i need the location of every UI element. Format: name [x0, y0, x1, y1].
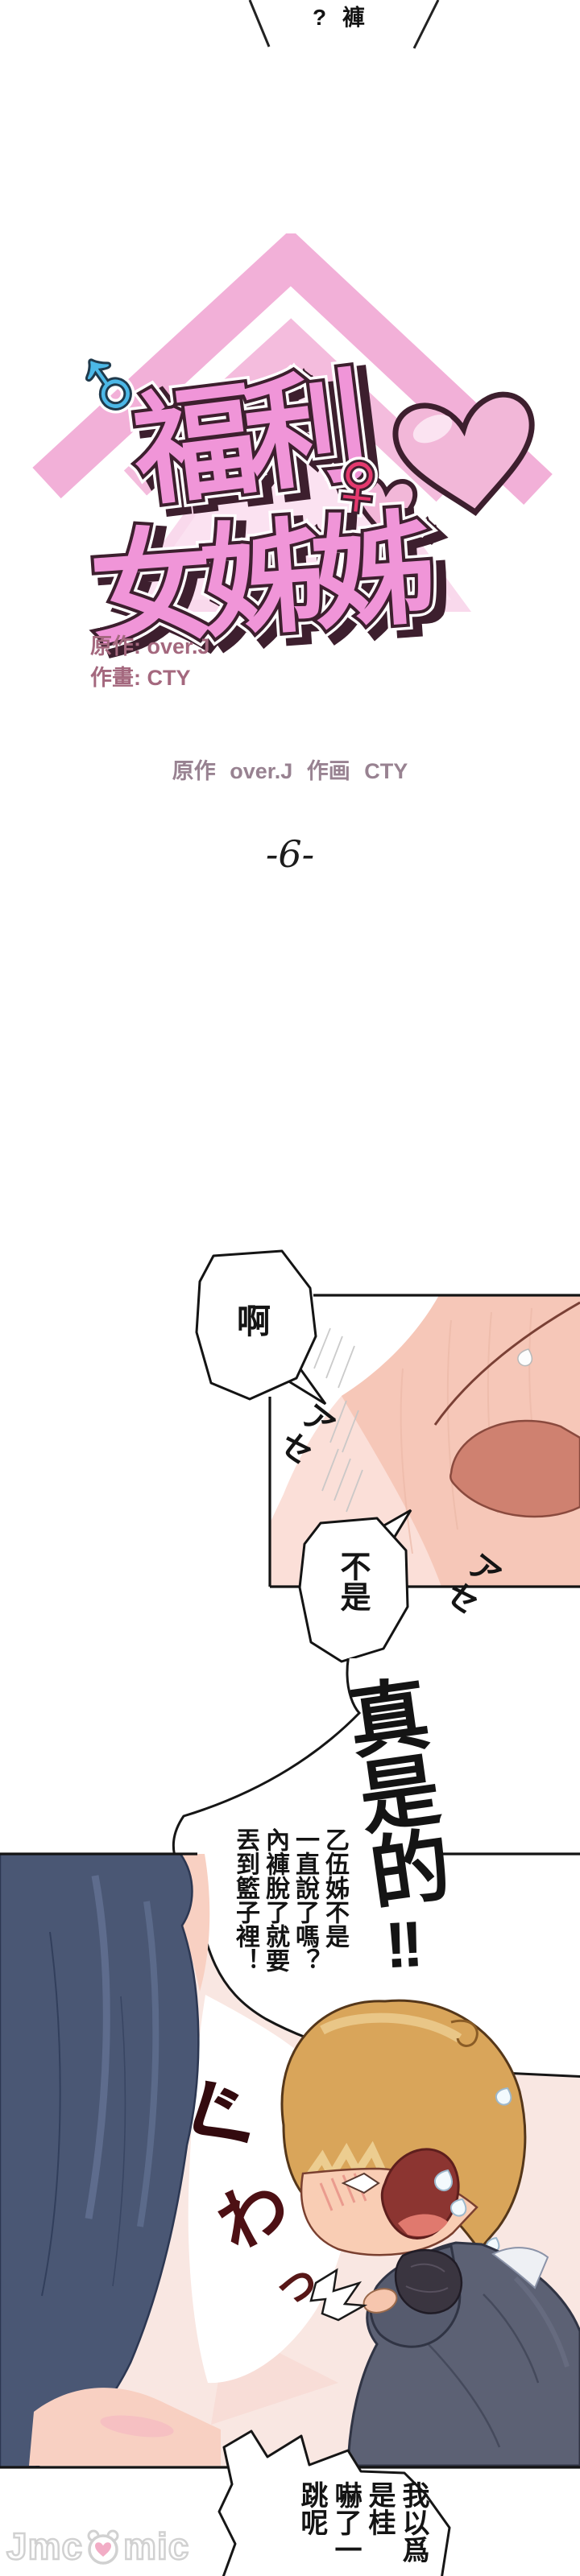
speech-col-3: 內褲脫了就要	[260, 1827, 290, 1996]
episode-number: -6-	[0, 832, 580, 876]
top-bubble-text: ? 褲	[313, 0, 370, 32]
watermark-suffix: mic	[123, 2524, 189, 2568]
bottom-col-left: 嚇了一跳呢	[295, 2481, 362, 2576]
panel2-art	[0, 1658, 580, 2576]
watermark-prefix: Jmc	[6, 2524, 83, 2568]
bottom-col-right: 我以爲是桂	[362, 2481, 430, 2576]
credit-original: 原作: over.J	[90, 631, 210, 663]
panda-icon	[85, 2529, 122, 2566]
underwear-in-fist	[396, 2250, 462, 2313]
credit-center: 原作 over.J 作画 CTY	[0, 753, 580, 785]
speech-col-2: 一直說了嗎？	[290, 1827, 320, 1996]
watermark: Jmc mic	[6, 2524, 189, 2568]
bubble-ah-text: 啊	[237, 1294, 271, 1344]
bottom-bubble-speech: 我以爲是桂 嚇了一跳呢	[295, 2481, 430, 2576]
shout-bubble-speech: 乙伍姊不是 一直說了嗎？ 內褲脫了就要 丟到籃子裡！	[230, 1827, 350, 1996]
top-bubble-fragment-lines	[0, 0, 580, 56]
credit-artist: 作畫: CTY	[90, 663, 210, 694]
credits-left: 原作: over.J 作畫: CTY	[90, 631, 210, 694]
speech-col-1: 乙伍姊不是	[320, 1827, 350, 1996]
comic-page: ? 褲 ♂ ♂ ♂ 福利 福利 福利 福利 ♀ ♀ ♀ 女姊姊 女姊姊 女姊姊	[0, 0, 580, 2576]
shout-exclamation: !!	[383, 1905, 466, 1983]
bubble-not-text: 不是	[335, 1550, 369, 1612]
speech-col-4: 丟到籃子裡！	[230, 1827, 260, 1996]
